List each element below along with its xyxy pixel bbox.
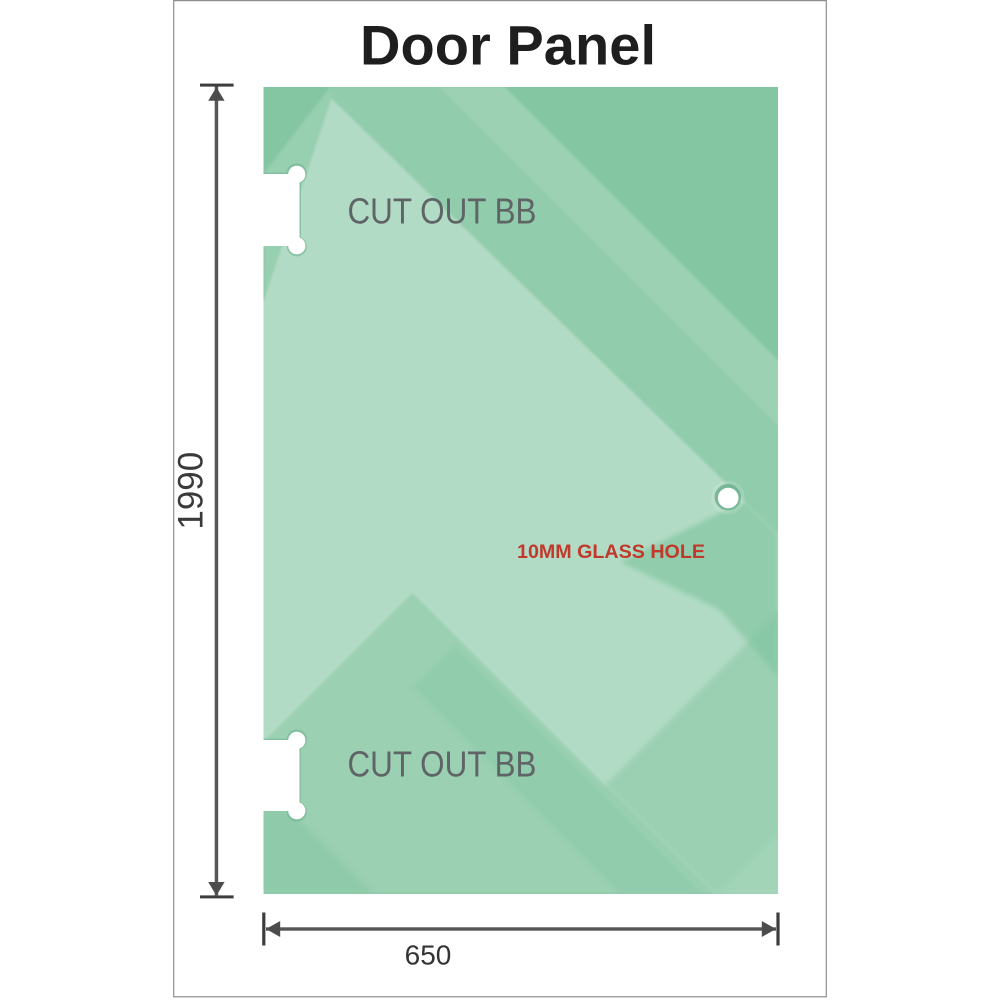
svg-text:CUT OUT BB: CUT OUT BB [348,190,537,231]
svg-text:Door Panel: Door Panel [360,14,656,77]
svg-text:650: 650 [405,940,452,971]
svg-text:10MM GLASS HOLE: 10MM GLASS HOLE [517,541,705,563]
svg-text:1990: 1990 [172,452,211,530]
svg-text:CUT OUT BB: CUT OUT BB [348,744,537,785]
